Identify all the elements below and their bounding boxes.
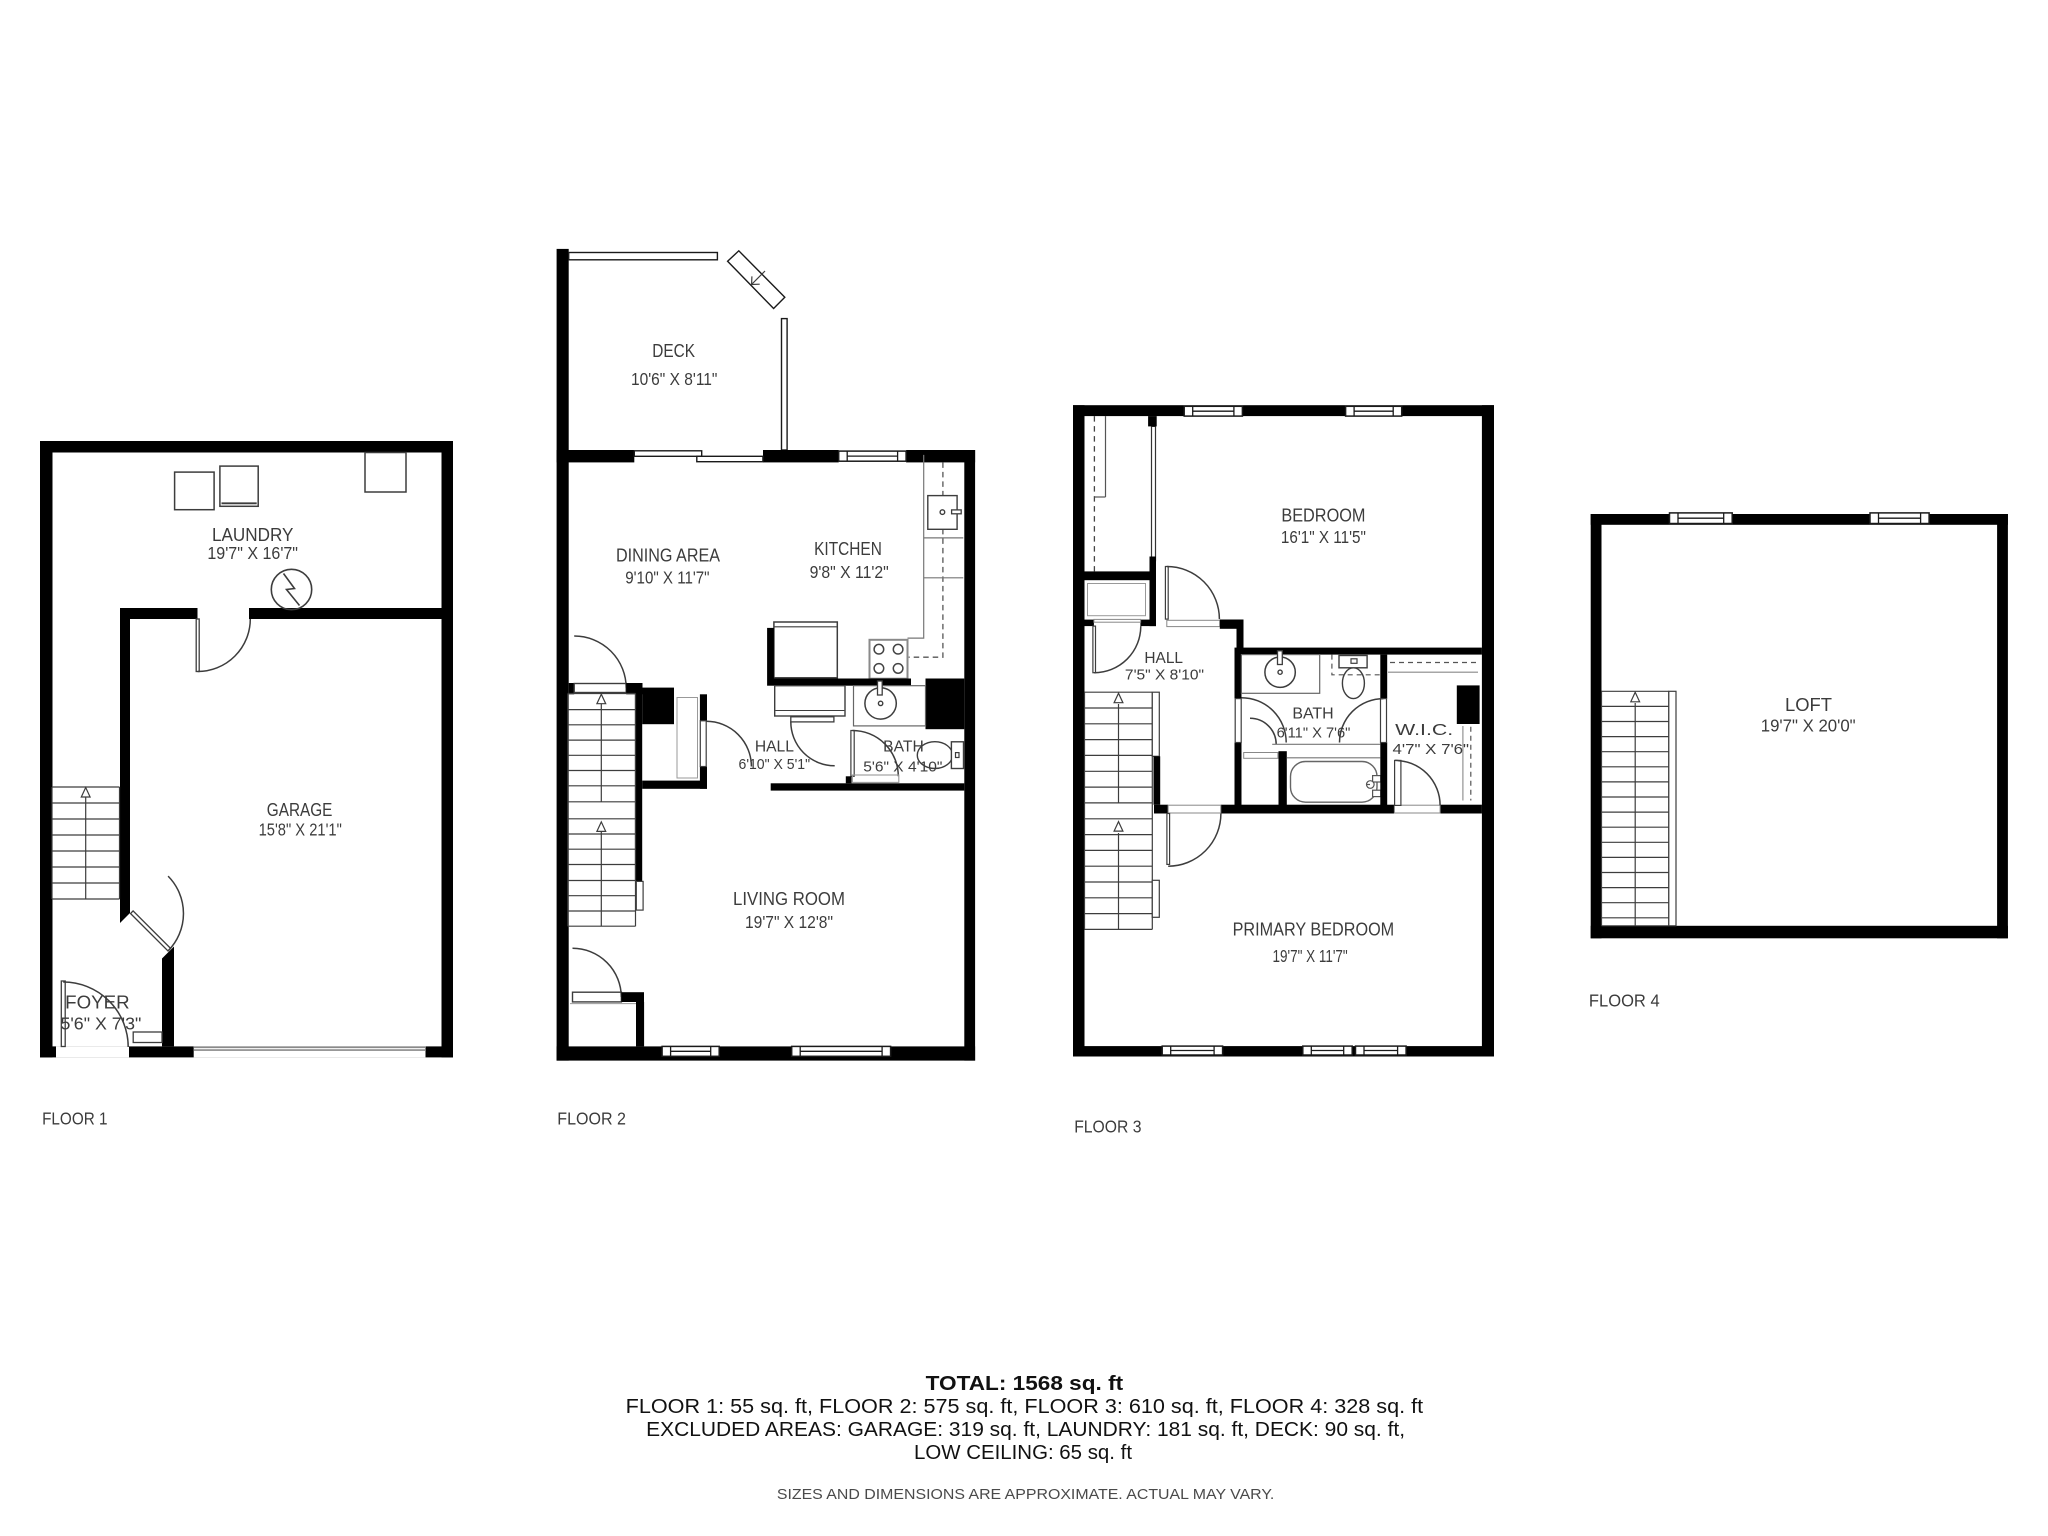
svg-text:SIZES AND DIMENSIONS ARE APPRO: SIZES AND DIMENSIONS ARE APPROXIMATE. AC…	[777, 1486, 1275, 1503]
svg-text:BATH: BATH	[1292, 706, 1333, 723]
svg-text:GARAGE: GARAGE	[267, 799, 333, 820]
svg-text:15'8" X 21'1": 15'8" X 21'1"	[259, 820, 342, 840]
svg-text:FOYER: FOYER	[65, 992, 129, 1013]
svg-text:FLOOR 4: FLOOR 4	[1589, 991, 1660, 1011]
svg-text:19'7" X 20'0": 19'7" X 20'0"	[1761, 716, 1856, 736]
svg-text:LIVING ROOM: LIVING ROOM	[733, 888, 845, 909]
svg-text:KITCHEN: KITCHEN	[814, 538, 882, 559]
svg-text:6'10" X 5'1": 6'10" X 5'1"	[739, 756, 811, 773]
svg-text:FLOOR 1: FLOOR 1	[42, 1109, 107, 1129]
svg-text:9'10" X 11'7": 9'10" X 11'7"	[625, 567, 709, 587]
svg-text:DECK: DECK	[652, 340, 695, 361]
svg-text:DINING AREA: DINING AREA	[616, 544, 721, 565]
svg-text:FLOOR 1: 55 sq. ft, FLOOR 2: 5: FLOOR 1: 55 sq. ft, FLOOR 2: 575 sq. ft,…	[626, 1396, 1424, 1418]
svg-text:7'5" X 8'10": 7'5" X 8'10"	[1125, 667, 1204, 684]
svg-text:6'11" X 7'6": 6'11" X 7'6"	[1277, 725, 1351, 742]
svg-text:FLOOR 2: FLOOR 2	[557, 1109, 626, 1129]
svg-text:PRIMARY BEDROOM: PRIMARY BEDROOM	[1233, 919, 1395, 940]
svg-text:HALL: HALL	[755, 738, 794, 755]
svg-text:19'7" X 16'7": 19'7" X 16'7"	[207, 543, 298, 563]
svg-text:LOW CEILING: 65 sq. ft: LOW CEILING: 65 sq. ft	[914, 1442, 1132, 1464]
svg-text:EXCLUDED AREAS: GARAGE: 319 sq: EXCLUDED AREAS: GARAGE: 319 sq. ft, LAUN…	[646, 1419, 1405, 1441]
svg-text:19'7" X 12'8": 19'7" X 12'8"	[745, 912, 833, 932]
svg-text:W.I.C.: W.I.C.	[1395, 722, 1453, 739]
svg-text:BEDROOM: BEDROOM	[1281, 505, 1365, 526]
svg-text:19'7" X 11'7": 19'7" X 11'7"	[1273, 946, 1348, 966]
svg-text:BATH: BATH	[883, 738, 924, 755]
svg-text:16'1" X 11'5": 16'1" X 11'5"	[1281, 527, 1366, 547]
svg-text:TOTAL: 1568 sq. ft: TOTAL: 1568 sq. ft	[926, 1373, 1124, 1395]
svg-text:4'7" X 7'6": 4'7" X 7'6"	[1393, 741, 1470, 758]
svg-text:5'6" X 4'10": 5'6" X 4'10"	[863, 759, 942, 776]
svg-text:FLOOR 3: FLOOR 3	[1074, 1117, 1141, 1137]
svg-text:10'6" X 8'11": 10'6" X 8'11"	[631, 369, 717, 389]
svg-text:HALL: HALL	[1144, 650, 1183, 667]
svg-text:5'6" X 7'3": 5'6" X 7'3"	[61, 1014, 142, 1034]
svg-text:LOFT: LOFT	[1785, 694, 1832, 715]
svg-text:LAUNDRY: LAUNDRY	[212, 524, 293, 545]
svg-text:9'8" X 11'2": 9'8" X 11'2"	[810, 562, 889, 582]
